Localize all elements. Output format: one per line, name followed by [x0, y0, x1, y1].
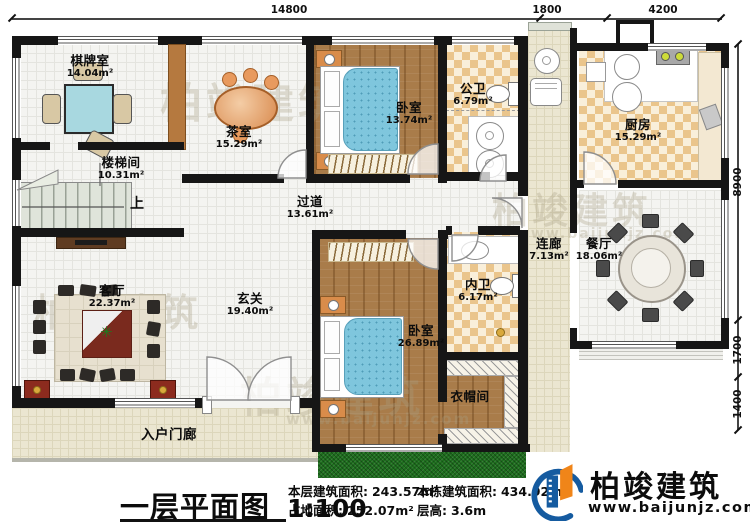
room-label-dining: 餐厅18.06m²: [564, 237, 634, 262]
entrance-door-right: [248, 357, 291, 400]
room-label-tea-room: 茶室15.29m²: [204, 125, 274, 150]
brand-website: www.baijunjz.com: [588, 500, 750, 516]
room-label-foyer: 玄关19.40m²: [215, 292, 285, 317]
corridor-door: [492, 198, 522, 228]
bedroom2-door: [408, 239, 438, 269]
brand-logo-icon: [531, 459, 583, 521]
dimension-right-3: 1400: [732, 387, 744, 421]
entrance-door-left: [207, 357, 250, 400]
room-label-stair-hall: 楼梯间10.31m²: [86, 156, 156, 181]
stat-footprint-area: 占地面积: 252.07m²: [288, 500, 414, 519]
room-label-bedroom1: 卧室13.74m²: [374, 101, 444, 126]
bath1-door: [480, 155, 506, 181]
room-label-porch: 入户门廊: [124, 428, 214, 443]
dimension-top-3: 4200: [640, 4, 686, 16]
room-label-game-room: 棋牌室14.04m²: [55, 54, 125, 79]
dimension-top-1: 14800: [258, 4, 320, 16]
dimension-top-2: 1800: [524, 4, 570, 16]
dimension-line-right: [737, 44, 739, 430]
tea-room-door: [278, 150, 306, 178]
dimension-line-top: [12, 18, 722, 20]
bath2-door: [452, 235, 478, 261]
room-label-living: 客厅22.37m²: [77, 284, 147, 309]
bedroom1-door: [408, 144, 438, 174]
door-arcs-overlay: [0, 0, 750, 528]
kitchen-door: [584, 152, 616, 184]
stat-floor-height: 层高: 3.6m: [417, 500, 486, 519]
room-label-hallway: 过道13.61m²: [275, 195, 345, 220]
room-label-private-bath: 内卫6.17m²: [443, 278, 513, 303]
stair-break-line: [17, 170, 58, 190]
room-label-public-bath: 公卫6.79m²: [440, 82, 506, 107]
room-label-closet: 衣帽间: [435, 390, 505, 404]
stair-up-label: 上: [126, 197, 148, 213]
title-underline: [120, 519, 286, 522]
dimension-right-1: 8900: [732, 165, 744, 199]
room-label-bedroom2: 卧室26.89m²: [386, 324, 456, 349]
floor-plan: 柏竣建筑 柏竣建筑 www.baijunjz.com 柏竣建筑 柏竣建筑 www…: [0, 0, 750, 528]
dimension-right-2: 1700: [732, 333, 744, 367]
room-label-kitchen: 厨房15.29m²: [603, 118, 673, 143]
